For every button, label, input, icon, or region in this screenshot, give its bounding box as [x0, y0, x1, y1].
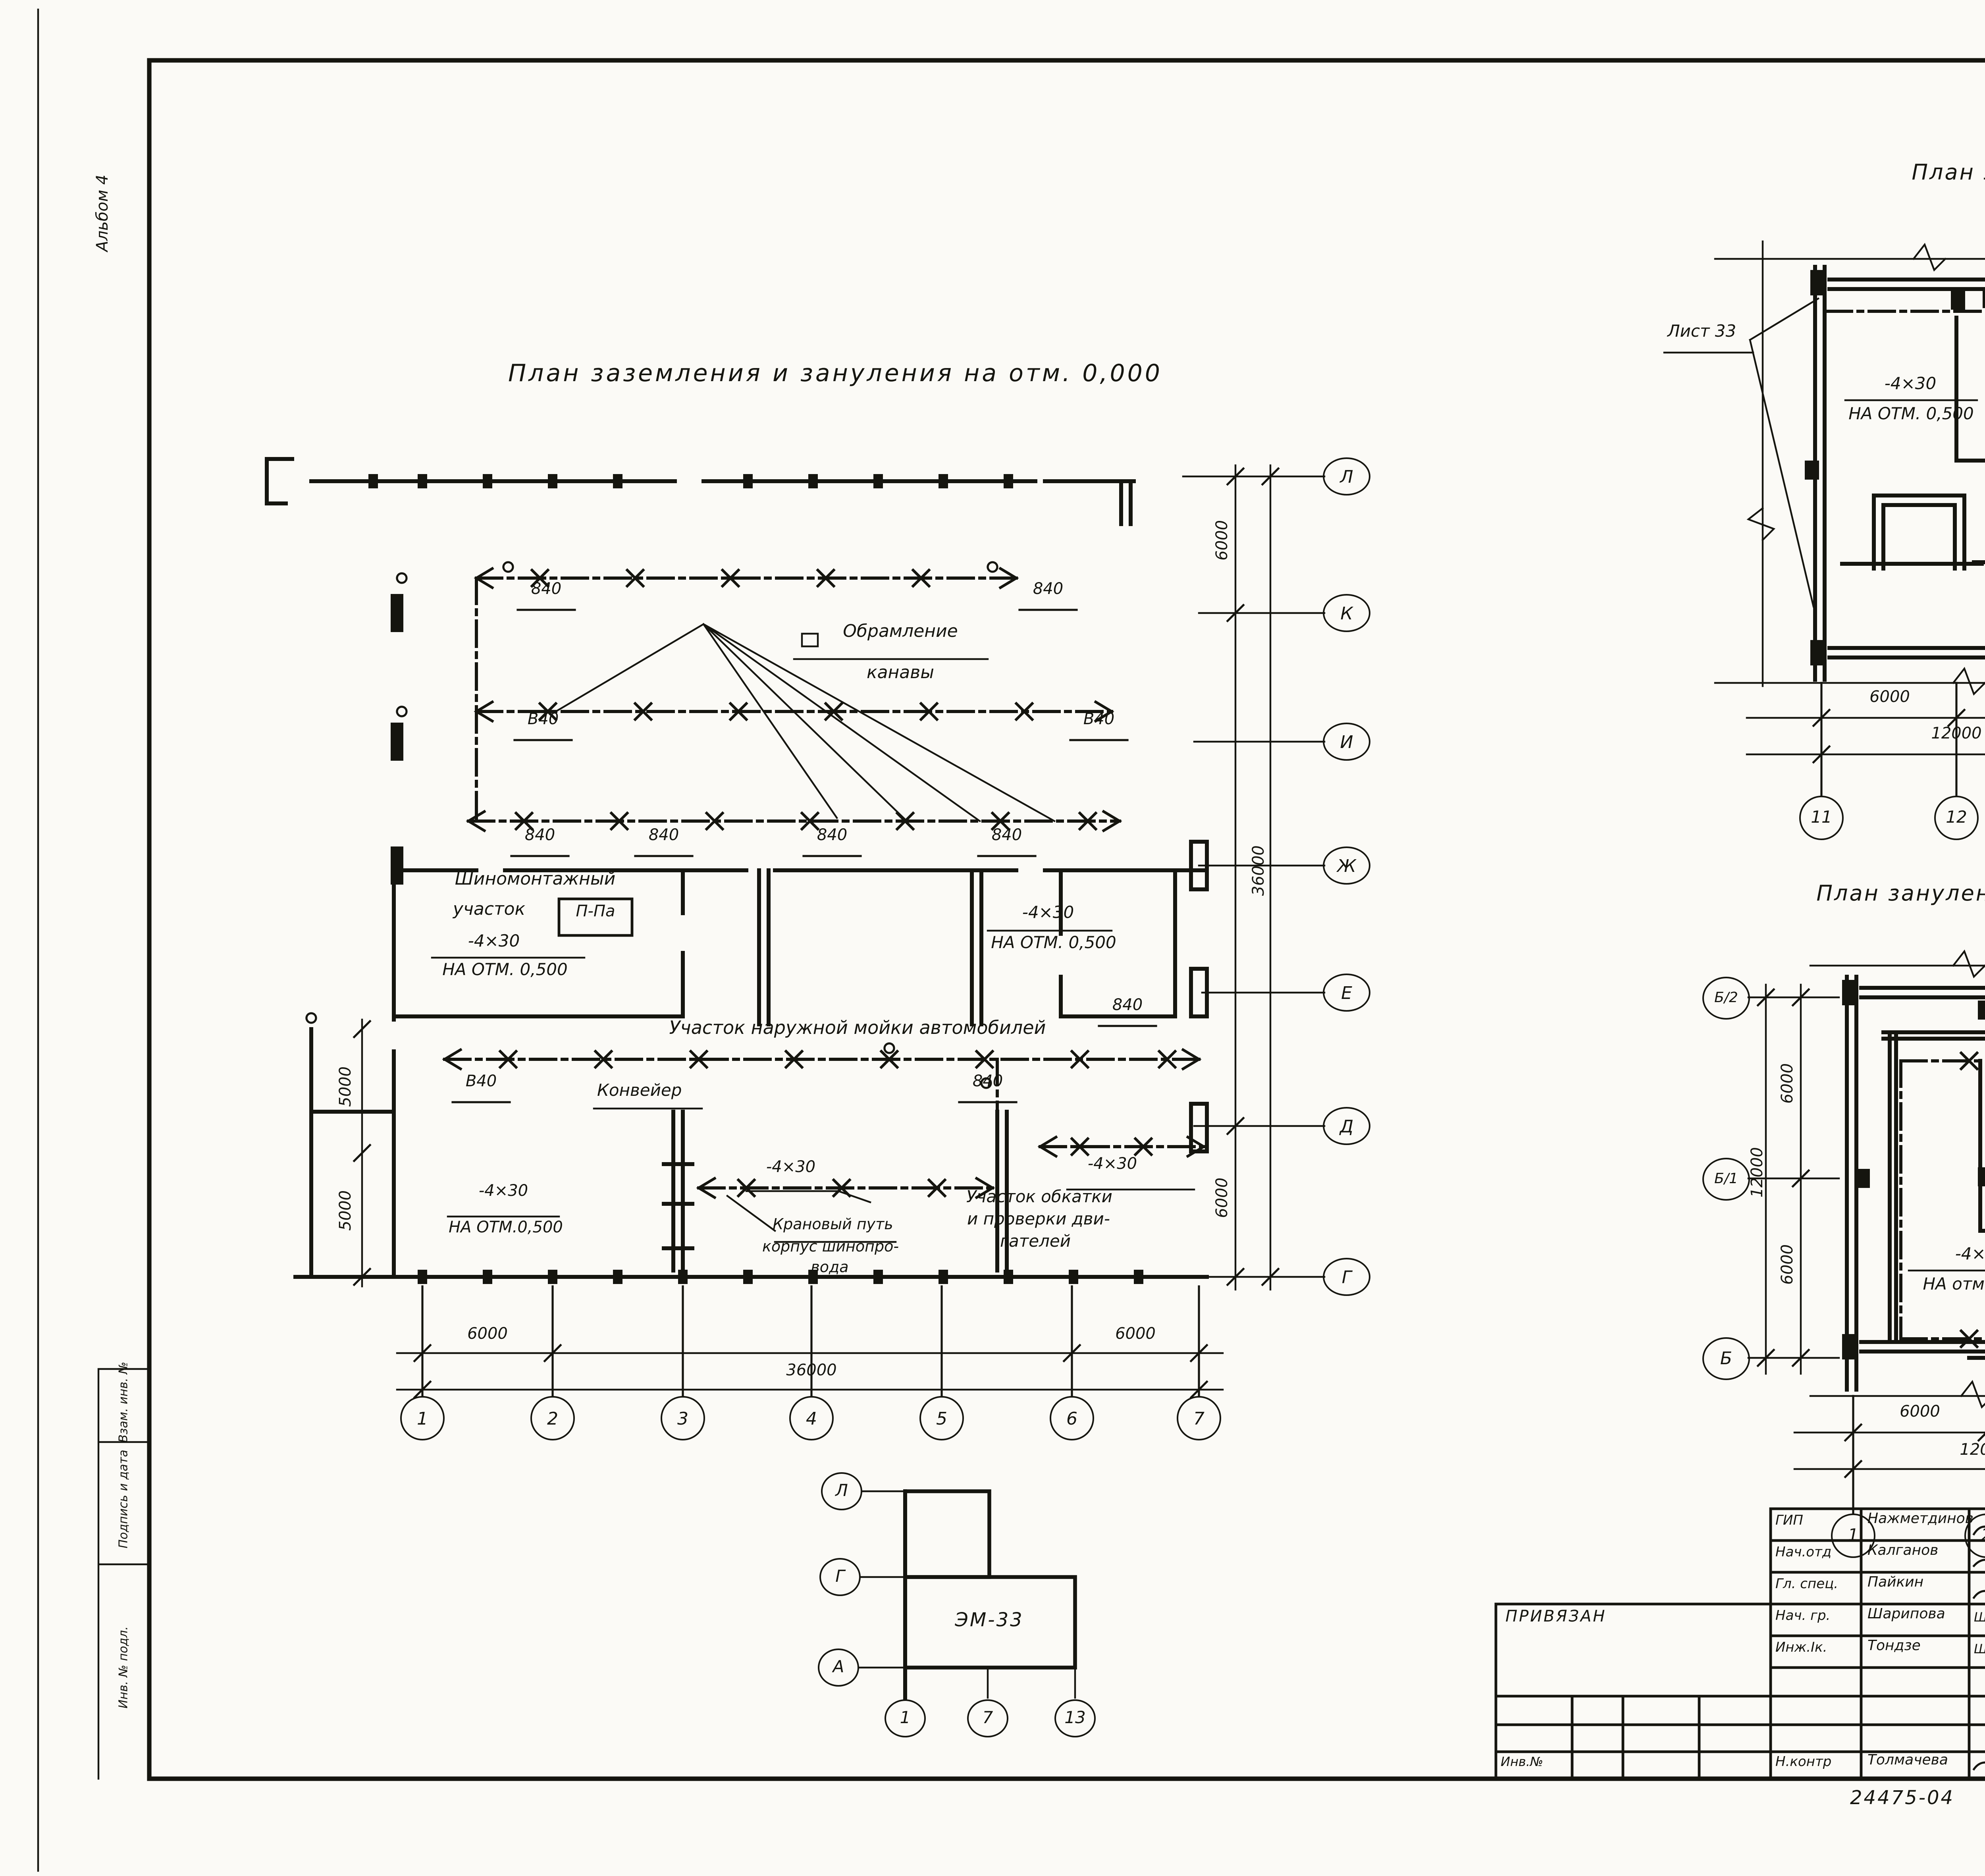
note-obramlenie-line2: канавы — [813, 664, 988, 682]
room-obkatka-line2: и проверки дви- — [937, 1212, 1140, 1229]
drawing-sheet: 59 Альбом 4 Взам. инв. № Подпись и дата … — [0, 0, 1985, 1876]
axis-letter: А — [833, 1658, 844, 1677]
axis-letter: Ж — [1337, 855, 1356, 876]
bus-label-v40: В40 — [1067, 713, 1131, 730]
dim-6000: 6000 — [456, 1328, 519, 1344]
axis-bubble-col: 1 — [885, 1699, 926, 1737]
axis-number: 1 — [900, 1709, 911, 1728]
conductor-size-note: -4×30 — [1921, 1247, 1985, 1264]
signoff-name: Калганов — [1867, 1545, 1966, 1560]
axis-number: 7 — [1193, 1408, 1204, 1429]
bus-label-840: 840 — [1016, 583, 1080, 600]
key-plan-label: ЭМ-33 — [934, 1610, 1045, 1630]
room-shinomontazh-badge: П-Па — [559, 905, 632, 922]
elevation-note: НА отм.0,500 — [1909, 1277, 1985, 1294]
column-marks — [368, 270, 1985, 1359]
axis-number: 2 — [1981, 1526, 1985, 1545]
conductor-size-note: -4×30 — [1000, 905, 1096, 923]
conductor-size-note: -4×30 — [1061, 1158, 1164, 1174]
axis-letter: К — [1340, 603, 1353, 623]
bus-label-840: 840 — [1096, 999, 1159, 1016]
axis-bubble-col: 7 — [967, 1699, 1008, 1737]
signoff-role: Гл. спец. — [1775, 1579, 1858, 1593]
axis-bubble-col: 1 — [400, 1396, 445, 1440]
room-kranovy-line2: корпус шинопро- — [759, 1240, 902, 1256]
axis-letter: Б/2 — [1714, 990, 1738, 1006]
bus-label-v40: В40 — [511, 713, 575, 730]
axis-letter: Л — [1340, 466, 1353, 487]
axis-letter: Д — [1340, 1116, 1353, 1136]
cross-marks — [445, 569, 1985, 1347]
note-list33: Лист 33 — [1667, 324, 1736, 341]
room-shinomontazh-line1: Шиномонтажный — [416, 870, 654, 889]
axis-bubble-row: Л — [1323, 457, 1370, 496]
note-konveyer: Конвейер — [597, 1083, 682, 1101]
axis-number: 7 — [983, 1709, 993, 1728]
axis-bubble-col: 11 — [1799, 796, 1844, 840]
signoff-signature: Шарип. — [1974, 1612, 1985, 1625]
axis-letter: И — [1340, 731, 1353, 752]
order-number: 24475-04 — [1850, 1788, 1954, 1808]
dim-12000: 12000 — [1945, 1444, 1985, 1460]
margin-box-inv: Инв. № подл. — [118, 1610, 130, 1725]
conductor-size-note: -4×30 — [448, 1185, 559, 1201]
axis-letter: Г — [835, 1568, 844, 1587]
axis-bubble-row: Г — [819, 1558, 861, 1596]
axis-bubble-col: 6 — [1050, 1396, 1094, 1440]
axis-letter: Л — [835, 1482, 848, 1501]
signoff-role: ГИП — [1775, 1515, 1858, 1529]
axis-bubble-col: 4 — [789, 1396, 834, 1440]
dim-5000-v: 5000 — [339, 1055, 356, 1118]
axis-bubble-row: Д — [1323, 1107, 1370, 1145]
bus-label-840: 840 — [508, 829, 572, 846]
room-moyka-label: Участок наружной мойки автомобилей — [619, 1020, 1096, 1039]
axis-bubble-row: Ж — [1323, 846, 1370, 885]
dim-12000: 12000 — [1917, 727, 1985, 744]
axis-letter: Е — [1341, 982, 1352, 1003]
elevation-note: НА ОТМ. 0,500 — [426, 962, 584, 980]
conductor-size-note: -4×30 — [1855, 376, 1966, 394]
axis-bubble-row: Б/1 — [1702, 1158, 1750, 1201]
signoff-name: Тондзе — [1867, 1641, 1966, 1655]
axis-letter: Г — [1342, 1267, 1352, 1287]
axis-bubble-row: Б — [1702, 1337, 1750, 1380]
bus-label-840: 840 — [956, 1075, 1019, 1092]
dim-6000-v: 6000 — [1781, 1233, 1798, 1296]
elevation-note: НА ОТМ. 0,500 — [1836, 407, 1985, 424]
main-plan-title: План заземления и зануления на отм. 0,00… — [508, 362, 1143, 387]
axis-bubble-row: Е — [1323, 974, 1370, 1012]
axis-bubble-row: Б/2 — [1702, 977, 1750, 1020]
scanned-drawing-sheet: 59 Альбом 4 Взам. инв. № Подпись и дата … — [0, 0, 1985, 1876]
bus-label-840: 840 — [800, 829, 864, 846]
album-label: Альбом 4 — [96, 150, 113, 277]
axis-number: 12 — [1946, 808, 1967, 827]
room-kranovy-line1: Крановый путь — [765, 1218, 900, 1234]
room-obkatka-line1: Участок обкатки — [940, 1190, 1139, 1207]
axis-number: 3 — [677, 1408, 688, 1429]
axis-number: 4 — [806, 1408, 817, 1429]
signature-squiggles — [1974, 1517, 1985, 1799]
elevation-note: НА ОТМ.0,500 — [438, 1221, 573, 1238]
signoff-role: Нач. гр. — [1775, 1610, 1858, 1624]
bus-label-840: 840 — [975, 829, 1039, 846]
dim-36000-v: 36000 — [1253, 831, 1269, 910]
axis-letter: Б — [1720, 1348, 1732, 1369]
axis-number: 11 — [1811, 808, 1832, 827]
dim-6000: 6000 — [1888, 1406, 1952, 1422]
signoff-name: Пайкин — [1867, 1577, 1966, 1592]
plan-top-right-title: План зануления на отм. 3.600 — [1826, 162, 1985, 184]
signoff-signature: Шарип. — [1974, 1644, 1985, 1657]
dim-6000-v: 6000 — [1781, 1052, 1798, 1115]
axis-number: 6 — [1066, 1408, 1077, 1429]
axis-bubble-col: 3 — [661, 1396, 705, 1440]
signoff-name: Нажметдинов — [1867, 1514, 1966, 1528]
dim-6000-v: 6000 — [1216, 1166, 1233, 1230]
bus-label-840: 840 — [515, 583, 578, 600]
room-shinomontazh-line2: участок — [426, 900, 553, 919]
axis-bubble-row: Л — [821, 1472, 862, 1510]
dim-6000-v: 6000 — [1216, 509, 1233, 572]
axis-letter: Б/1 — [1714, 1171, 1738, 1187]
axis-bubble-row: А — [818, 1648, 859, 1687]
elevation-note: НА ОТМ. 0,500 — [978, 935, 1129, 953]
bus-label-v40: В40 — [449, 1075, 513, 1092]
dim-12000-v: 12000 — [1751, 1136, 1768, 1209]
axis-bubble-row: Г — [1323, 1258, 1370, 1296]
axis-bubble-col: 13 — [1054, 1699, 1096, 1737]
privyazan-label: ПРИВЯЗАН — [1505, 1610, 1607, 1627]
dim-5000-v: 5000 — [339, 1179, 356, 1242]
signoff-role: Н.контр — [1775, 1756, 1858, 1770]
signoff-name: Шарипова — [1867, 1609, 1966, 1623]
dim-6000: 6000 — [1104, 1328, 1167, 1344]
dim-6000: 6000 — [1858, 691, 1921, 708]
signoff-name: Толмачева — [1867, 1755, 1966, 1770]
key-plan-hatched-zone — [905, 1491, 989, 1577]
axis-bubble-col: 5 — [919, 1396, 964, 1440]
axis-bubble-col: 7 — [1177, 1396, 1221, 1440]
axis-number: 2 — [547, 1408, 558, 1429]
bus-label-840: 840 — [632, 829, 696, 846]
axis-number: 13 — [1064, 1709, 1086, 1728]
axis-bubble-row: К — [1323, 594, 1370, 632]
conductor-size-note: -4×30 — [438, 934, 549, 951]
axis-number: 1 — [417, 1408, 428, 1429]
signoff-role: Нач.отд — [1775, 1547, 1858, 1561]
axis-bubble-col: 12 — [1934, 796, 1979, 840]
inv-no-label: Инв.№ — [1501, 1756, 1543, 1770]
axis-bubble-col: 2 — [530, 1396, 575, 1440]
note-obramlenie-line1: Обрамление — [813, 623, 988, 641]
plan-mid-right-title: План зануления на отм. 3,600 — [1763, 883, 1985, 905]
room-obkatka-line3: гателей — [972, 1234, 1099, 1251]
margin-box-podpis: Подпись и дата — [118, 1436, 130, 1563]
axis-bubble-row: И — [1323, 723, 1370, 761]
dim-36000: 36000 — [772, 1364, 851, 1381]
signoff-role: Инж.Iк. — [1775, 1642, 1858, 1656]
conductor-size-note: -4×30 — [743, 1161, 838, 1178]
axis-number: 5 — [936, 1408, 947, 1429]
room-kranovy-line3: вода — [794, 1261, 865, 1277]
